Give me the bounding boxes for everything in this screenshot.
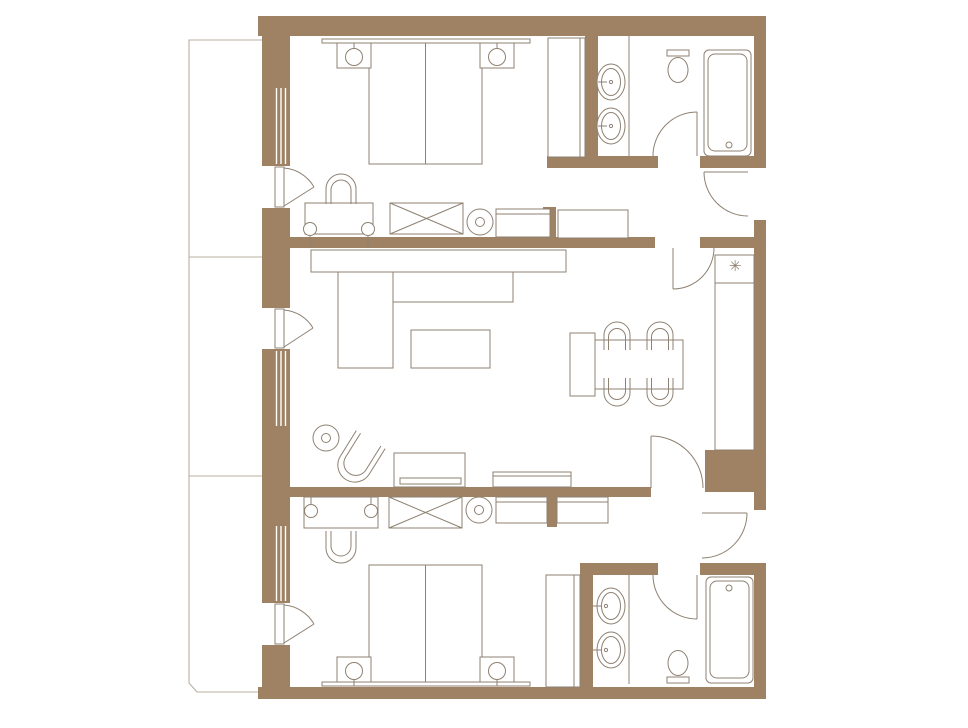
wall-bathroom-top-south-b: [700, 156, 766, 168]
wall-bathroom-top-left: [585, 34, 598, 157]
dresser: [557, 497, 608, 523]
table-lamp-icon: [346, 663, 363, 680]
nightstand-left: [337, 657, 371, 686]
armchair: [331, 431, 385, 489]
console: [496, 209, 550, 237]
balcony-door-living: [275, 309, 313, 348]
bathroom-door: [653, 575, 697, 619]
headboard-panel: [322, 39, 530, 43]
corridor-top: ✳: [558, 172, 754, 450]
wall-entry-block-bottom: [705, 450, 754, 492]
sink-lower: [593, 632, 625, 668]
balcony-door-bedroom-bottom: [275, 604, 314, 644]
luggage-rack: [389, 497, 462, 528]
toilet: [667, 50, 689, 83]
sofa-seat: [393, 272, 513, 302]
nightstand-right: [480, 43, 514, 68]
wall-right-lower: [754, 563, 766, 687]
living-dining: [311, 250, 683, 489]
wall-left-seg1: [262, 34, 290, 86]
closet: [548, 38, 585, 157]
floor-plan-page: ✳: [0, 0, 968, 728]
stool: [467, 209, 493, 235]
arch-chair: [326, 174, 356, 204]
double-bed: [369, 43, 482, 164]
luggage-rack: [390, 203, 463, 234]
bathroom-bottom: [593, 575, 753, 684]
wardrobe-column: [715, 255, 754, 450]
wall-bathroom-top-south-a: [547, 156, 658, 168]
low-console: [493, 472, 571, 487]
balcony-door-bedroom-top: [275, 167, 314, 207]
wall-right-middle: [754, 220, 766, 510]
walls: [258, 16, 766, 699]
wall-left-seg3: [262, 428, 290, 524]
inner-door-bottom-unit: [651, 436, 703, 488]
inner-door-top-unit: [673, 248, 714, 289]
balcony-outline: [189, 40, 262, 692]
headboard-panel: [322, 682, 530, 686]
wall-top: [258, 16, 766, 36]
bedroom-top: [304, 38, 586, 247]
bathroom-door: [653, 112, 697, 156]
wall-bottom: [258, 687, 766, 699]
sink-upper: [593, 588, 625, 624]
closet-row: [558, 210, 628, 238]
stool: [466, 497, 492, 523]
bathroom-top: [597, 36, 751, 156]
nightstand-right: [480, 657, 514, 686]
closet: [546, 575, 580, 687]
arch-chair: [326, 531, 356, 563]
entry-door-top-unit: [704, 172, 748, 216]
side-table: [313, 425, 339, 451]
balcony: [189, 40, 262, 692]
floor-plan-drawing: ✳: [0, 0, 968, 728]
table-lamp-icon: [489, 49, 506, 66]
wall-bathroom-bottom-left: [580, 563, 593, 687]
table-lamp-icon: [489, 663, 506, 680]
sofa-back: [311, 250, 566, 272]
console: [496, 497, 547, 523]
double-bed: [369, 565, 482, 682]
wall-stub-bottom-unit: [547, 497, 557, 527]
entry-door-bottom-unit: [702, 513, 747, 558]
bathtub: [706, 577, 753, 683]
coffee-table: [411, 330, 490, 368]
chaise-lounge: [338, 272, 393, 368]
wall-divider-top: [290, 237, 655, 248]
bedroom-bottom: [304, 497, 580, 687]
wall-bathroom-bottom-north-a: [580, 563, 658, 575]
toilet: [667, 651, 689, 684]
wall-bathroom-bottom-north-b: [700, 563, 755, 575]
sink-upper: [597, 64, 625, 100]
tv-console: [394, 453, 465, 487]
desk: [304, 497, 378, 528]
wall-divider-top-stub: [700, 237, 754, 248]
wall-left-seg4: [262, 645, 290, 689]
nightstand-left: [337, 43, 371, 68]
table-lamp-icon: [346, 49, 363, 66]
wall-divider-bottom: [290, 487, 651, 497]
sink-lower: [597, 108, 625, 144]
dining-bench: [570, 333, 595, 396]
minibar-snowflake-icon: ✳: [729, 257, 742, 275]
wall-left-seg2: [262, 208, 290, 308]
wall-right-upper: [754, 34, 766, 168]
bathtub: [704, 50, 751, 156]
